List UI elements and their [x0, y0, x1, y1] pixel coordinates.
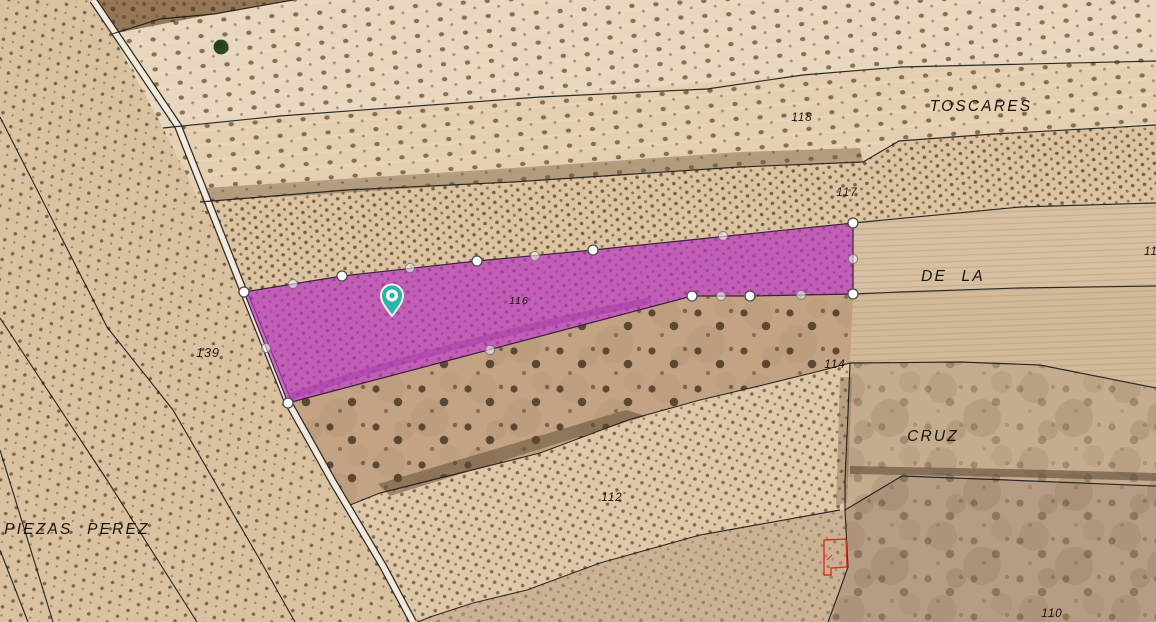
- toponym-label: TOSCARES: [930, 98, 1033, 115]
- parcel-number-label: 11: [1144, 246, 1156, 258]
- parcel-vertex-handle[interactable]: [588, 245, 598, 255]
- parcel-midpoint-handle[interactable]: [261, 343, 270, 352]
- parcel-number-label: 116: [509, 295, 529, 307]
- parcel-number-label: 117: [836, 187, 857, 199]
- parcel-midpoint-handle[interactable]: [848, 254, 857, 263]
- toponym-label: CRUZ: [907, 428, 959, 445]
- parcel-midpoint-handle[interactable]: [485, 345, 494, 354]
- toponym-label: PIEZAS PEREZ: [4, 521, 150, 538]
- parcel-vertex-handle[interactable]: [848, 289, 858, 299]
- parcel-number-label: 118: [791, 112, 812, 124]
- parcel-vertex-handle[interactable]: [472, 256, 482, 266]
- parcel-number-label: 112: [601, 492, 622, 504]
- parcel-midpoint-handle[interactable]: [718, 231, 727, 240]
- parcel-vertex-handle[interactable]: [337, 271, 347, 281]
- parcel-midpoint-handle[interactable]: [405, 263, 414, 272]
- map-viewport[interactable]: TOSCARES DE LA CRUZ PIEZAS PEREZ 118 117…: [0, 0, 1156, 622]
- parcel-midpoint-handle[interactable]: [288, 279, 297, 288]
- parcel-vertex-handle[interactable]: [745, 291, 755, 301]
- parcel-vertex-handle[interactable]: [687, 291, 697, 301]
- cadastral-map[interactable]: TOSCARES DE LA CRUZ PIEZAS PEREZ 118 117…: [0, 0, 1156, 622]
- toponym-label: DE LA: [921, 268, 985, 285]
- parcel-midpoint-handle[interactable]: [716, 291, 725, 300]
- parcel-vertex-handle[interactable]: [283, 398, 293, 408]
- parcel-vertex-handle[interactable]: [848, 218, 858, 228]
- tree-icon: [215, 41, 223, 49]
- parcel-midpoint-handle[interactable]: [796, 290, 805, 299]
- parcel-number-label: 110: [1041, 608, 1062, 620]
- parcel-vertex-handle[interactable]: [239, 287, 249, 297]
- parcel-midpoint-handle[interactable]: [530, 251, 539, 260]
- parcel-number-label: 139: [196, 346, 220, 360]
- parcel-number-label: 114: [824, 359, 845, 371]
